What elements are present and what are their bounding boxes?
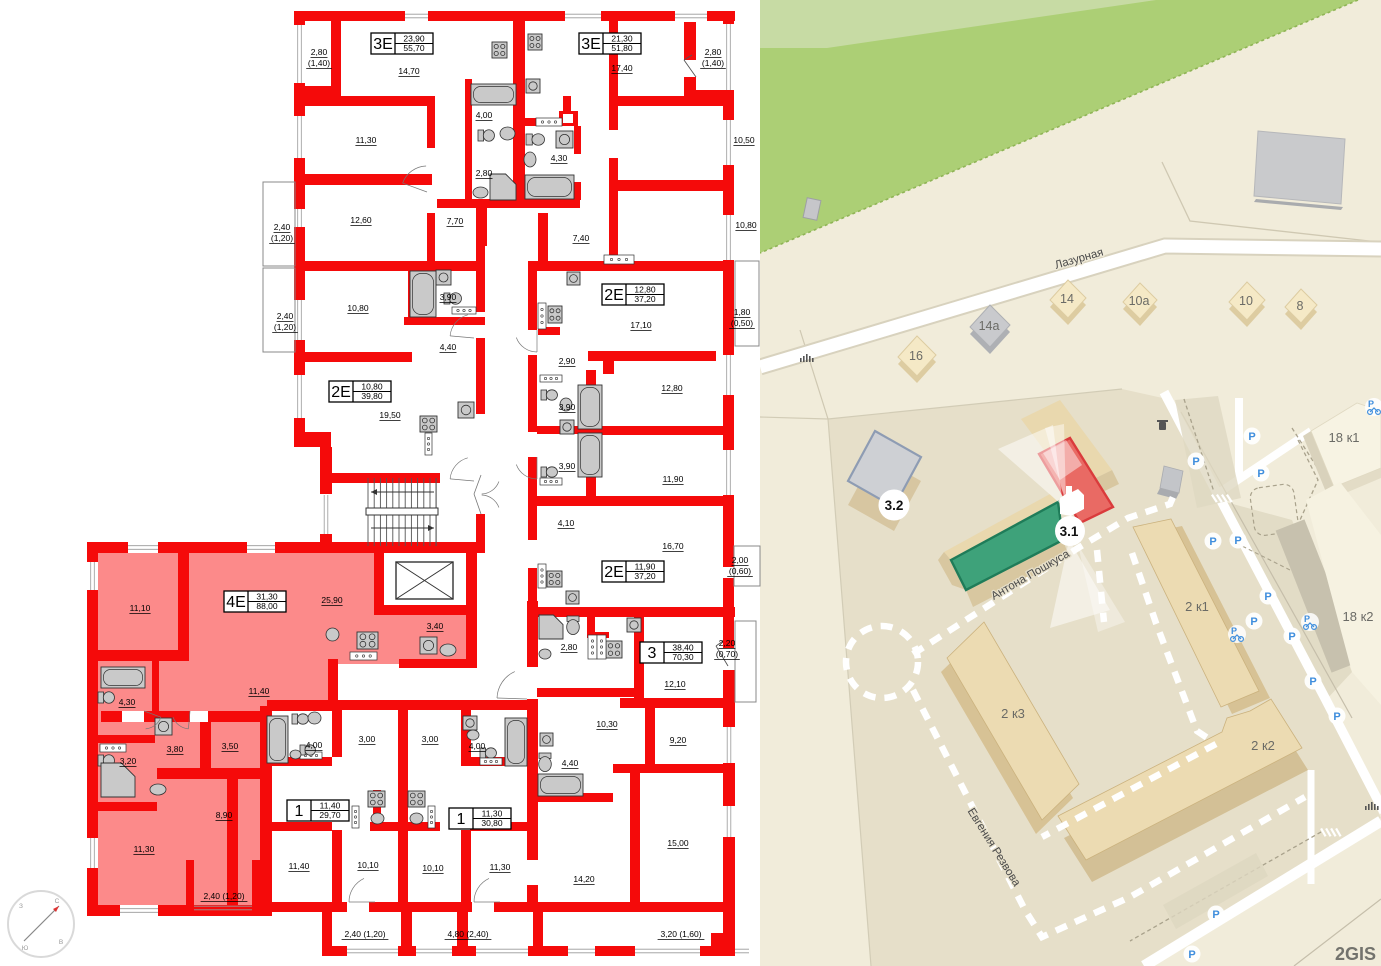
svg-text:2,80: 2,80 bbox=[311, 47, 328, 57]
svg-text:3.2: 3.2 bbox=[885, 498, 904, 513]
svg-text:3,90: 3,90 bbox=[440, 292, 457, 302]
svg-text:2,40: 2,40 bbox=[277, 311, 294, 321]
svg-text:10,50: 10,50 bbox=[733, 135, 755, 145]
svg-text:4,00: 4,00 bbox=[306, 740, 323, 750]
svg-text:2 к1: 2 к1 bbox=[1185, 599, 1209, 614]
svg-text:39,80: 39,80 bbox=[361, 391, 383, 401]
svg-text:2GIS: 2GIS bbox=[1335, 944, 1376, 964]
svg-text:4,30: 4,30 bbox=[119, 697, 136, 707]
svg-text:P: P bbox=[1248, 431, 1255, 443]
svg-text:12,80: 12,80 bbox=[661, 383, 683, 393]
svg-text:4,00: 4,00 bbox=[469, 741, 486, 751]
svg-text:11,40: 11,40 bbox=[289, 861, 310, 871]
svg-text:23,90: 23,90 bbox=[403, 34, 425, 44]
svg-text:10,10: 10,10 bbox=[357, 860, 379, 870]
svg-text:11,30: 11,30 bbox=[134, 844, 155, 854]
svg-text:P: P bbox=[1288, 631, 1295, 643]
svg-text:14,70: 14,70 bbox=[398, 66, 420, 76]
svg-text:1: 1 bbox=[457, 811, 466, 828]
svg-text:2 к2: 2 к2 bbox=[1251, 738, 1275, 753]
svg-text:3,90: 3,90 bbox=[559, 461, 576, 471]
svg-text:12,60: 12,60 bbox=[350, 215, 372, 225]
svg-text:4Е: 4Е bbox=[226, 594, 246, 611]
svg-text:30,80: 30,80 bbox=[481, 818, 503, 828]
svg-text:3.1: 3.1 bbox=[1060, 524, 1079, 539]
svg-text:(1,40): (1,40) bbox=[308, 58, 330, 68]
svg-text:31,30: 31,30 bbox=[256, 592, 278, 602]
svg-text:P: P bbox=[1234, 535, 1241, 547]
svg-text:P: P bbox=[1368, 399, 1374, 409]
svg-text:2,40 (1,20): 2,40 (1,20) bbox=[203, 891, 244, 901]
svg-text:P: P bbox=[1309, 676, 1316, 688]
svg-text:11,90: 11,90 bbox=[635, 562, 656, 572]
svg-text:2Е: 2Е bbox=[604, 287, 624, 304]
svg-text:4,40: 4,40 bbox=[562, 758, 579, 768]
svg-text:З: З bbox=[19, 903, 23, 910]
svg-text:2,40: 2,40 bbox=[274, 222, 291, 232]
svg-text:1,80: 1,80 bbox=[734, 307, 751, 317]
svg-text:18 к1: 18 к1 bbox=[1329, 430, 1360, 445]
svg-text:38,40: 38,40 bbox=[672, 643, 694, 653]
svg-text:21,30: 21,30 bbox=[611, 34, 633, 44]
svg-text:P: P bbox=[1231, 626, 1237, 636]
svg-text:16: 16 bbox=[909, 349, 923, 363]
svg-text:2Е: 2Е bbox=[331, 384, 351, 401]
svg-text:2,40 (1,20): 2,40 (1,20) bbox=[344, 929, 385, 939]
svg-text:Ю: Ю bbox=[22, 945, 29, 952]
svg-text:7,70: 7,70 bbox=[447, 216, 464, 226]
svg-text:11,30: 11,30 bbox=[482, 809, 503, 819]
svg-text:11,40: 11,40 bbox=[249, 686, 270, 696]
svg-text:3Е: 3Е bbox=[581, 36, 601, 53]
svg-text:10а: 10а bbox=[1129, 294, 1150, 308]
svg-text:4,00: 4,00 bbox=[476, 110, 493, 120]
svg-text:29,70: 29,70 bbox=[319, 810, 341, 820]
svg-text:70,30: 70,30 bbox=[672, 652, 694, 662]
svg-text:P: P bbox=[1188, 949, 1195, 961]
svg-text:12,80: 12,80 bbox=[634, 285, 656, 295]
svg-text:2Е: 2Е bbox=[604, 564, 624, 581]
svg-text:19,50: 19,50 bbox=[379, 410, 401, 420]
svg-text:В: В bbox=[59, 939, 63, 946]
svg-text:(1,20): (1,20) bbox=[274, 322, 296, 332]
svg-text:11,10: 11,10 bbox=[130, 603, 151, 613]
svg-text:37,20: 37,20 bbox=[634, 294, 656, 304]
svg-text:11,90: 11,90 bbox=[663, 474, 684, 484]
svg-text:18 к2: 18 к2 bbox=[1343, 609, 1374, 624]
svg-text:4,80 (2,40): 4,80 (2,40) bbox=[447, 929, 488, 939]
svg-text:37,20: 37,20 bbox=[634, 571, 656, 581]
svg-text:3,50: 3,50 bbox=[222, 741, 239, 751]
svg-text:2,20: 2,20 bbox=[719, 638, 736, 648]
svg-text:(0,60): (0,60) bbox=[729, 566, 751, 576]
svg-text:2,80: 2,80 bbox=[705, 47, 722, 57]
svg-text:51,80: 51,80 bbox=[611, 43, 633, 53]
svg-text:2 к3: 2 к3 bbox=[1001, 706, 1025, 721]
svg-text:15,00: 15,00 bbox=[667, 838, 689, 848]
svg-text:8,90: 8,90 bbox=[216, 810, 233, 820]
svg-text:4,40: 4,40 bbox=[440, 342, 457, 352]
svg-text:4,10: 4,10 bbox=[558, 518, 575, 528]
svg-text:(0,70): (0,70) bbox=[716, 649, 738, 659]
svg-text:P: P bbox=[1333, 711, 1340, 723]
svg-text:P: P bbox=[1257, 468, 1264, 480]
svg-text:2,90: 2,90 bbox=[559, 356, 576, 366]
svg-text:P: P bbox=[1209, 536, 1216, 548]
svg-text:25,90: 25,90 bbox=[321, 595, 343, 605]
svg-text:3,20 (1,60): 3,20 (1,60) bbox=[660, 929, 701, 939]
svg-text:11,30: 11,30 bbox=[490, 862, 511, 872]
svg-text:3,90: 3,90 bbox=[559, 402, 576, 412]
svg-text:3,00: 3,00 bbox=[422, 734, 439, 744]
svg-text:P: P bbox=[1264, 591, 1271, 603]
svg-text:P: P bbox=[1212, 909, 1219, 921]
svg-text:2,00: 2,00 bbox=[732, 555, 749, 565]
svg-text:7,40: 7,40 bbox=[573, 233, 590, 243]
svg-text:10,80: 10,80 bbox=[347, 303, 369, 313]
svg-text:88,00: 88,00 bbox=[256, 601, 278, 611]
svg-text:P: P bbox=[1192, 456, 1199, 468]
svg-text:3Е: 3Е bbox=[373, 36, 393, 53]
svg-text:1: 1 bbox=[295, 803, 304, 820]
svg-text:P: P bbox=[1304, 614, 1310, 624]
svg-text:14а: 14а bbox=[979, 319, 1000, 333]
svg-text:3,80: 3,80 bbox=[167, 744, 184, 754]
svg-text:10,10: 10,10 bbox=[422, 863, 444, 873]
svg-text:(1,40): (1,40) bbox=[702, 58, 724, 68]
svg-text:10,30: 10,30 bbox=[596, 719, 618, 729]
svg-text:11,40: 11,40 bbox=[320, 801, 341, 811]
svg-text:4,30: 4,30 bbox=[551, 153, 568, 163]
svg-text:3,00: 3,00 bbox=[359, 734, 376, 744]
svg-text:(0,50): (0,50) bbox=[731, 318, 753, 328]
svg-text:14,20: 14,20 bbox=[573, 874, 595, 884]
svg-text:16,70: 16,70 bbox=[662, 541, 684, 551]
svg-text:(1,20): (1,20) bbox=[271, 233, 293, 243]
svg-text:С: С bbox=[55, 898, 60, 905]
svg-text:9,20: 9,20 bbox=[670, 735, 687, 745]
svg-text:P: P bbox=[1250, 616, 1257, 628]
svg-text:12,10: 12,10 bbox=[664, 679, 686, 689]
svg-text:14: 14 bbox=[1060, 292, 1074, 306]
svg-text:17,10: 17,10 bbox=[630, 320, 652, 330]
svg-text:2,80: 2,80 bbox=[561, 642, 578, 652]
svg-text:17,40: 17,40 bbox=[611, 63, 633, 73]
svg-text:10,80: 10,80 bbox=[735, 220, 757, 230]
svg-text:10: 10 bbox=[1239, 294, 1253, 308]
svg-text:10,80: 10,80 bbox=[361, 382, 383, 392]
svg-text:2,80: 2,80 bbox=[476, 168, 493, 178]
svg-text:11,30: 11,30 bbox=[356, 135, 377, 145]
svg-text:3,40: 3,40 bbox=[427, 621, 444, 631]
svg-text:55,70: 55,70 bbox=[403, 43, 425, 53]
svg-text:3,20: 3,20 bbox=[120, 756, 137, 766]
svg-text:3: 3 bbox=[648, 645, 657, 662]
svg-text:8: 8 bbox=[1297, 299, 1304, 313]
